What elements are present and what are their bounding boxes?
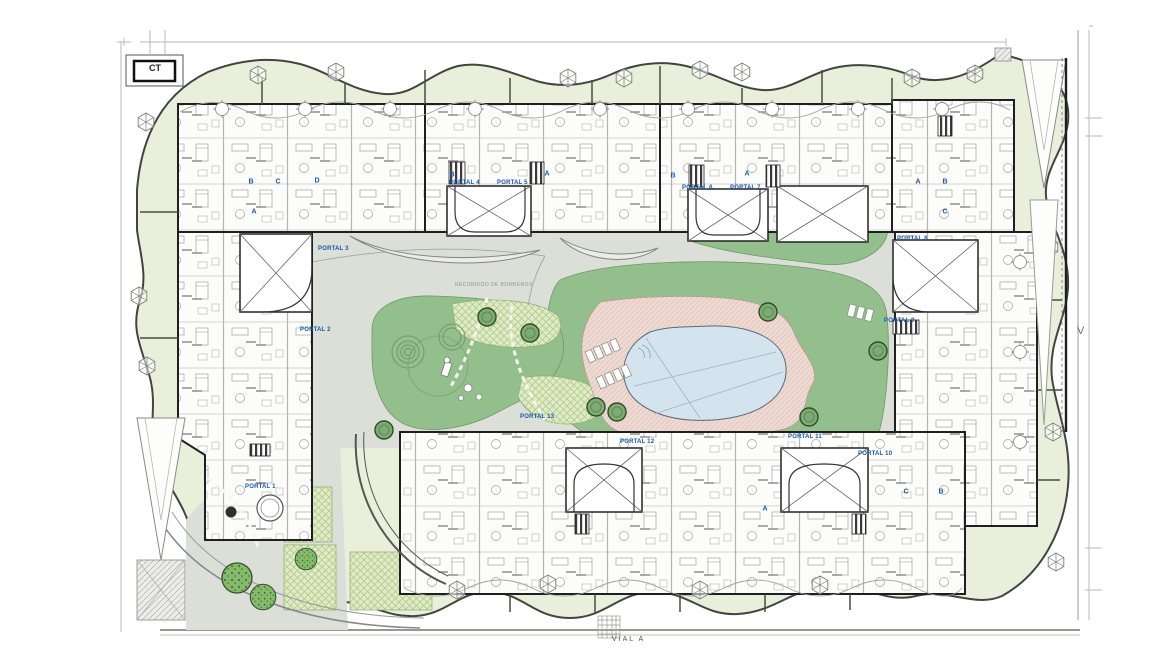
lobby-portal-3: [240, 234, 312, 312]
site-plan-drawing: [0, 0, 1170, 657]
lobby-portal-11: [781, 448, 868, 512]
building-top-right: [892, 100, 1014, 232]
bollard: [226, 507, 237, 518]
lobby-annex: [777, 186, 868, 242]
swimming-pool: [624, 326, 786, 420]
lobby-portal-4-5: [447, 186, 531, 236]
building-bottom-wing: [400, 432, 965, 594]
ct-box: [126, 30, 183, 86]
lobby-portal-6-7: [688, 189, 768, 241]
building-top-left: [178, 104, 425, 232]
lobby-portal-12: [566, 448, 642, 512]
lobby-portal-8: [893, 240, 978, 312]
site-plan-page: CT V VIAL A RECORRIDO DE BOMBEROS PORTAL…: [0, 0, 1170, 657]
